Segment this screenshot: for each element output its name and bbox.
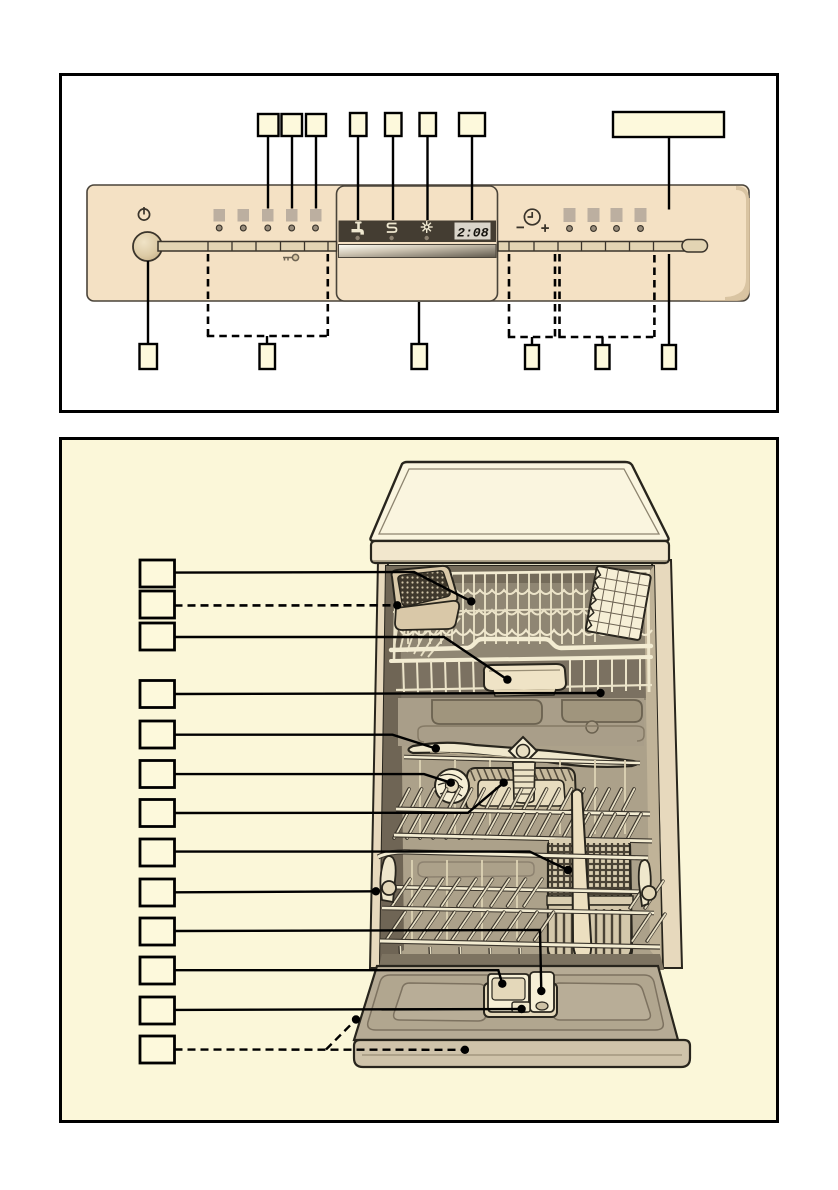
svg-text:2:08: 2:08 [457,226,489,241]
